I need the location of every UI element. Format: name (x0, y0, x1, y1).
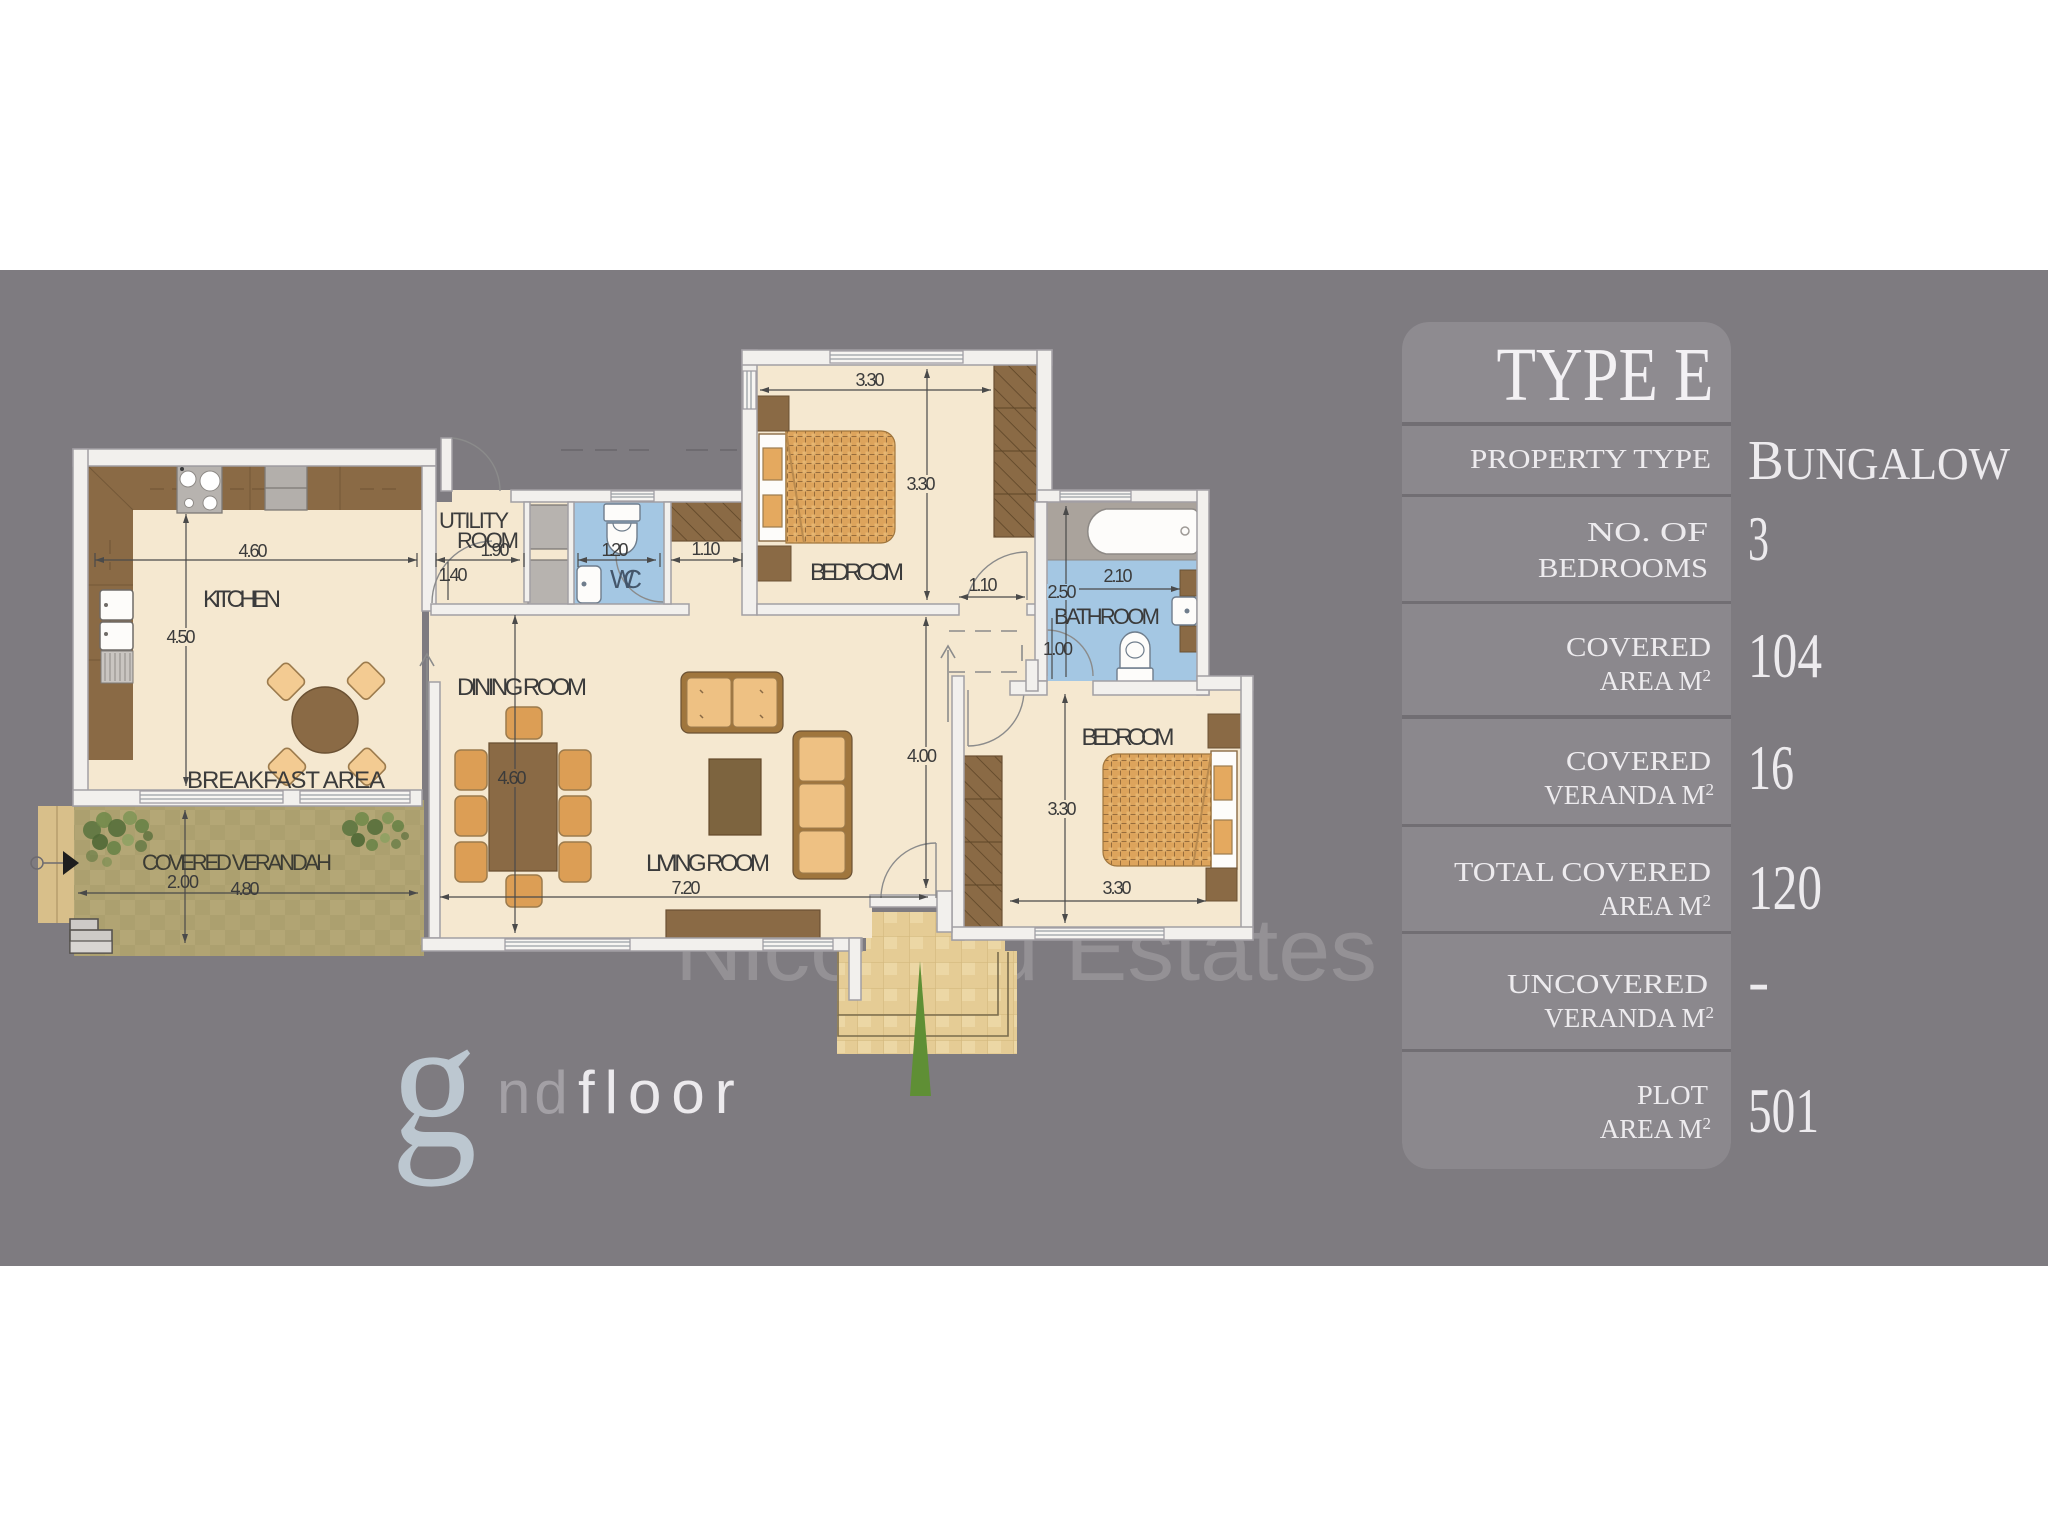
svg-text:4.00: 4.00 (907, 746, 937, 766)
svg-text:104: 104 (1748, 620, 1822, 691)
svg-text:1.00: 1.00 (1043, 639, 1073, 659)
svg-text:7.20: 7.20 (672, 878, 701, 898)
svg-text:UNCOVERED: UNCOVERED (1507, 969, 1708, 999)
svg-text:PROPERTY TYPE: PROPERTY TYPE (1470, 444, 1711, 474)
svg-text:BEDROOM: BEDROOM (810, 559, 904, 586)
svg-text:501: 501 (1748, 1075, 1819, 1146)
svg-text:KITCHEN: KITCHEN (203, 586, 281, 613)
svg-text:WC: WC (610, 564, 642, 594)
svg-text:VERANDA M2: VERANDA M2 (1544, 780, 1714, 810)
svg-text:16: 16 (1748, 732, 1794, 803)
svg-text:4.80: 4.80 (231, 879, 260, 899)
svg-text:3.30: 3.30 (907, 474, 936, 494)
svg-text:TOTAL COVERED: TOTAL COVERED (1454, 857, 1711, 887)
svg-text:DINING ROOM: DINING ROOM (457, 674, 587, 701)
svg-text:AREA M2: AREA M2 (1600, 666, 1711, 696)
svg-text:2.50: 2.50 (1048, 582, 1077, 602)
svg-text:PLOT: PLOT (1637, 1080, 1709, 1110)
svg-text:3: 3 (1748, 503, 1769, 574)
svg-text:BATHROOM: BATHROOM (1054, 604, 1160, 629)
svg-text:COVERED: COVERED (1566, 632, 1711, 662)
svg-text:3.30: 3.30 (1103, 878, 1132, 898)
svg-text:COVERED: COVERED (1566, 746, 1711, 776)
svg-text:-: - (1748, 945, 1769, 1016)
svg-text:VERANDA M2: VERANDA M2 (1544, 1003, 1714, 1033)
svg-text:1.40: 1.40 (439, 565, 468, 585)
svg-text:4.60: 4.60 (498, 768, 527, 788)
svg-text:120: 120 (1748, 852, 1822, 923)
svg-text:1.20: 1.20 (602, 540, 629, 560)
svg-text:2.00: 2.00 (167, 872, 199, 892)
svg-text:2.10: 2.10 (1104, 566, 1133, 586)
svg-text:1.90: 1.90 (481, 540, 510, 560)
svg-text:1.10: 1.10 (692, 539, 721, 559)
svg-text:1.10: 1.10 (969, 575, 998, 595)
svg-text:BUNGALOW: BUNGALOW (1748, 430, 2011, 492)
svg-text:BREAKFAST AREA: BREAKFAST AREA (187, 767, 385, 794)
svg-text:3.30: 3.30 (1048, 799, 1077, 819)
svg-text:4.50: 4.50 (167, 627, 196, 647)
svg-text:floor: floor (578, 1059, 745, 1126)
svg-text:4.60: 4.60 (239, 541, 268, 561)
svg-text:AREA M2: AREA M2 (1600, 1114, 1711, 1144)
svg-text:BEDROOMS: BEDROOMS (1538, 553, 1708, 583)
svg-text:LIVING ROOM: LIVING ROOM (646, 850, 770, 877)
svg-text:NO. OF: NO. OF (1587, 517, 1708, 547)
svg-text:AREA M2: AREA M2 (1600, 891, 1711, 921)
svg-text:g: g (391, 978, 477, 1187)
svg-text:nd: nd (497, 1059, 572, 1126)
svg-text:3.30: 3.30 (856, 370, 885, 390)
svg-text:BEDROOM: BEDROOM (1082, 724, 1175, 751)
svg-text:TYPE E: TYPE E (1497, 333, 1714, 417)
